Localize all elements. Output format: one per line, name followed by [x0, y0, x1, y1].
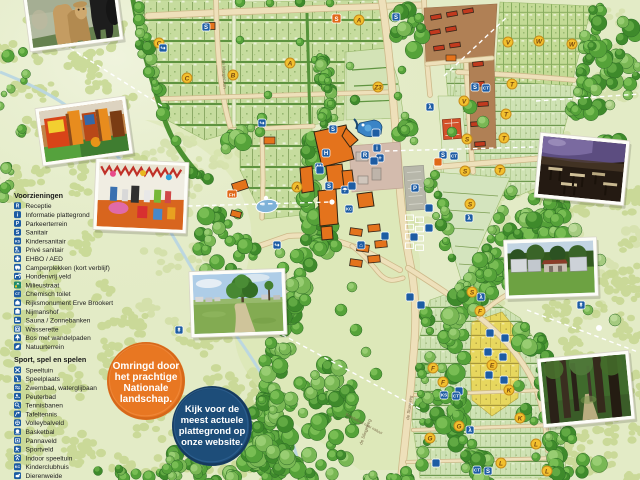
svg-text:L: L	[545, 468, 549, 475]
svg-text:+: +	[378, 156, 382, 162]
svg-text:S: S	[327, 184, 331, 190]
svg-text:Zwembad, waterglijbaan: Zwembad, waterglijbaan	[26, 385, 98, 392]
svg-text:Sport, spel en spelen: Sport, spel en spelen	[14, 355, 86, 364]
svg-text:Pannaveld: Pannaveld	[26, 438, 57, 445]
svg-text:P: P	[413, 186, 417, 192]
svg-text:↪: ↪	[259, 121, 264, 127]
svg-text:W: W	[569, 41, 576, 48]
svg-text:S: S	[486, 469, 490, 475]
svg-text:Rijksmonument Erve Brookert: Rijksmonument Erve Brookert	[26, 300, 114, 307]
svg-text:Camperplekken (kort verblijf): Camperplekken (kort verblijf)	[26, 265, 110, 272]
svg-text:R: R	[363, 153, 368, 159]
svg-text:↟: ↟	[176, 327, 181, 334]
svg-text:Kijk voor de: Kijk voor de	[185, 404, 239, 415]
svg-text:het prachtige: het prachtige	[115, 372, 178, 383]
svg-text:Wasserette: Wasserette	[26, 326, 59, 333]
svg-text:landschap.: landschap.	[120, 394, 172, 405]
svg-text:S: S	[394, 15, 398, 21]
svg-text:S: S	[465, 136, 470, 143]
svg-text:Bos met wandelpaden: Bos met wandelpaden	[26, 335, 92, 342]
svg-text:S: S	[334, 17, 338, 23]
svg-text:Kinderclubhuis: Kinderclubhuis	[26, 464, 70, 471]
svg-text:L: L	[499, 460, 503, 467]
svg-text:S: S	[470, 289, 475, 296]
svg-text:Natuurterrein: Natuurterrein	[26, 344, 65, 351]
svg-text:Kindersanitair: Kindersanitair	[26, 238, 67, 245]
svg-text:↪: ↪	[160, 46, 165, 52]
svg-text:G: G	[427, 435, 432, 442]
svg-text:☂: ☂	[342, 187, 348, 194]
svg-text:A: A	[287, 60, 293, 67]
svg-text:Volleybalveld: Volleybalveld	[26, 420, 65, 427]
svg-text:E: E	[490, 362, 495, 369]
svg-text:Dierenweide: Dierenweide	[26, 473, 63, 480]
svg-text:CT: CT	[474, 468, 480, 473]
svg-text:A: A	[294, 184, 300, 191]
svg-text:Sauna / Zonnebanken: Sauna / Zonnebanken	[26, 318, 91, 325]
svg-text:C: C	[185, 75, 190, 82]
svg-text:S: S	[468, 201, 473, 208]
svg-text:Chemisch toilet: Chemisch toilet	[26, 291, 71, 298]
svg-text:FH: FH	[229, 192, 236, 197]
svg-text:Tafeltennis: Tafeltennis	[26, 411, 58, 418]
svg-text:V: V	[462, 98, 467, 105]
svg-text:onze website.: onze website.	[181, 437, 243, 448]
svg-text:KC: KC	[346, 207, 352, 212]
svg-text:S: S	[473, 85, 477, 91]
svg-text:CT: CT	[15, 292, 21, 296]
svg-text:KS: KS	[15, 239, 21, 243]
svg-text:KC: KC	[15, 465, 21, 469]
svg-text:Milieustraat: Milieustraat	[26, 282, 60, 289]
svg-text:CT: CT	[451, 154, 457, 159]
svg-text:CT: CT	[483, 86, 489, 91]
svg-text:Hondenvrij veld: Hondenvrij veld	[26, 274, 72, 281]
svg-text:W: W	[536, 38, 543, 45]
svg-text:Indoor speeltuin: Indoor speeltuin	[26, 455, 73, 462]
svg-text:R: R	[16, 204, 20, 210]
svg-text:Nijmanshof: Nijmanshof	[26, 309, 59, 316]
svg-text:S: S	[204, 25, 208, 31]
svg-text:EHBO / AED: EHBO / AED	[26, 256, 64, 263]
svg-text:S: S	[331, 127, 335, 133]
svg-text:Basketbal: Basketbal	[26, 429, 55, 436]
svg-text:Voorzieningen: Voorzieningen	[14, 191, 63, 200]
svg-text:Informatie plattegrond: Informatie plattegrond	[26, 212, 90, 219]
svg-text:Nationale: Nationale	[123, 383, 168, 394]
svg-text:⌂: ⌂	[359, 243, 363, 249]
svg-text:Sportveld: Sportveld	[26, 447, 54, 454]
svg-text:↟: ↟	[578, 302, 583, 309]
svg-text:↪: ↪	[274, 243, 279, 249]
svg-text:Parkeerterrein: Parkeerterrein	[26, 221, 68, 228]
svg-text:Speeltuin: Speeltuin	[26, 367, 54, 374]
svg-text:S: S	[463, 168, 468, 175]
svg-text:A: A	[356, 17, 362, 24]
svg-text:Z3: Z3	[373, 84, 382, 91]
svg-text:Tennisbanen: Tennisbanen	[26, 403, 64, 410]
svg-text:Receptie: Receptie	[26, 203, 52, 210]
svg-text:meest actuele: meest actuele	[181, 415, 244, 426]
svg-text:Omringd door: Omringd door	[113, 361, 180, 372]
svg-text:H: H	[324, 151, 328, 157]
svg-text:Privé sanitair: Privé sanitair	[26, 247, 65, 254]
svg-text:CT: CT	[453, 394, 459, 399]
svg-text:G: G	[456, 423, 461, 430]
svg-text:KS: KS	[441, 393, 447, 398]
svg-text:B: B	[231, 72, 236, 79]
svg-text:plattegrond op: plattegrond op	[179, 426, 246, 437]
svg-text:Sanitair: Sanitair	[26, 230, 49, 237]
svg-text:Speelplaats: Speelplaats	[26, 376, 61, 383]
svg-text:V: V	[506, 39, 511, 46]
svg-text:Peuterbad: Peuterbad	[26, 394, 57, 401]
svg-text:L: L	[534, 441, 538, 448]
